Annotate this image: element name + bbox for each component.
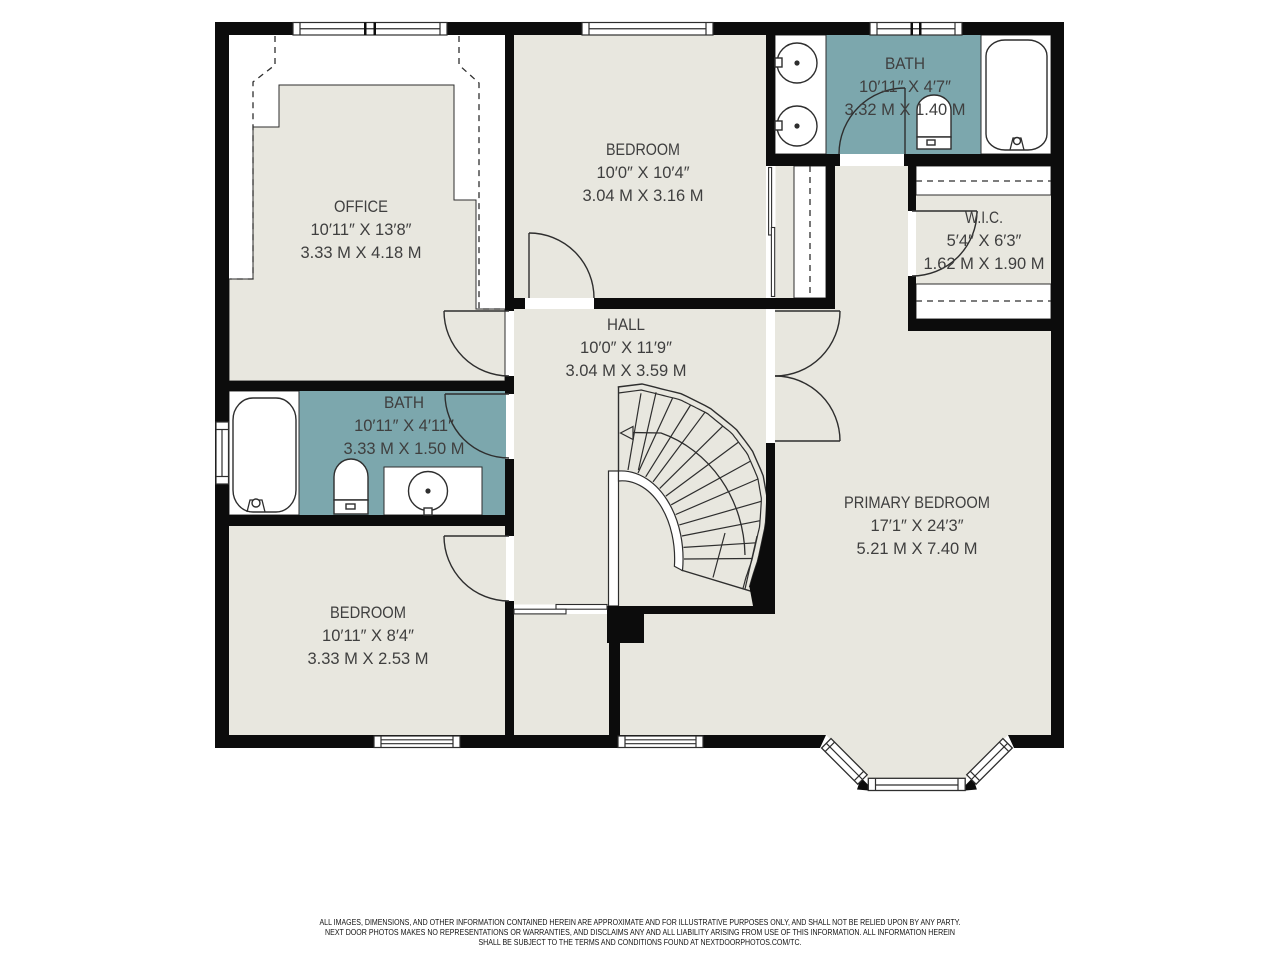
- svg-text:17′1″ X 24′3″: 17′1″ X 24′3″: [870, 517, 963, 535]
- svg-text:3.33 M X 4.18 M: 3.33 M X 4.18 M: [300, 244, 421, 262]
- svg-text:BATH: BATH: [384, 394, 424, 412]
- svg-text:10′11″ X 13′8″: 10′11″ X 13′8″: [310, 221, 411, 239]
- svg-text:3.33 M X 2.53 M: 3.33 M X 2.53 M: [307, 650, 428, 668]
- svg-text:BEDROOM: BEDROOM: [606, 141, 680, 159]
- svg-text:OFFICE: OFFICE: [334, 198, 388, 216]
- svg-text:1.62 M X 1.90 M: 1.62 M X 1.90 M: [923, 255, 1044, 273]
- svg-text:10′0″ X 10′4″: 10′0″ X 10′4″: [596, 164, 689, 182]
- svg-text:10′0″ X 11′9″: 10′0″ X 11′9″: [580, 339, 672, 357]
- svg-text:3.33 M X 1.50 M: 3.33 M X 1.50 M: [343, 440, 464, 458]
- svg-text:3.04 M X 3.59 M: 3.04 M X 3.59 M: [565, 362, 686, 380]
- svg-text:3.04 M X 3.16 M: 3.04 M X 3.16 M: [582, 187, 703, 205]
- svg-text:ALL IMAGES, DIMENSIONS, AND OT: ALL IMAGES, DIMENSIONS, AND OTHER INFORM…: [320, 918, 961, 927]
- svg-text:PRIMARY BEDROOM: PRIMARY BEDROOM: [844, 494, 990, 512]
- svg-text:BEDROOM: BEDROOM: [330, 604, 406, 622]
- svg-text:SHALL BE SUBJECT TO THE TERMS: SHALL BE SUBJECT TO THE TERMS AND CONDIT…: [479, 938, 802, 947]
- svg-text:HALL: HALL: [607, 316, 645, 334]
- svg-text:10′11″ X 8′4″: 10′11″ X 8′4″: [322, 627, 414, 645]
- svg-text:5′4″ X 6′3″: 5′4″ X 6′3″: [947, 232, 1022, 250]
- svg-text:5.21 M X 7.40 M: 5.21 M X 7.40 M: [856, 540, 977, 558]
- svg-text:10′11″ X 4′7″: 10′11″ X 4′7″: [859, 78, 951, 96]
- svg-text:NEXT DOOR PHOTOS MAKES NO REPR: NEXT DOOR PHOTOS MAKES NO REPRESENTATION…: [325, 928, 955, 937]
- svg-text:BATH: BATH: [885, 55, 925, 73]
- svg-text:3.32 M X 1.40 M: 3.32 M X 1.40 M: [844, 101, 965, 119]
- svg-text:W.I.C.: W.I.C.: [965, 209, 1003, 227]
- svg-text:10′11″ X 4′11″: 10′11″ X 4′11″: [354, 417, 454, 435]
